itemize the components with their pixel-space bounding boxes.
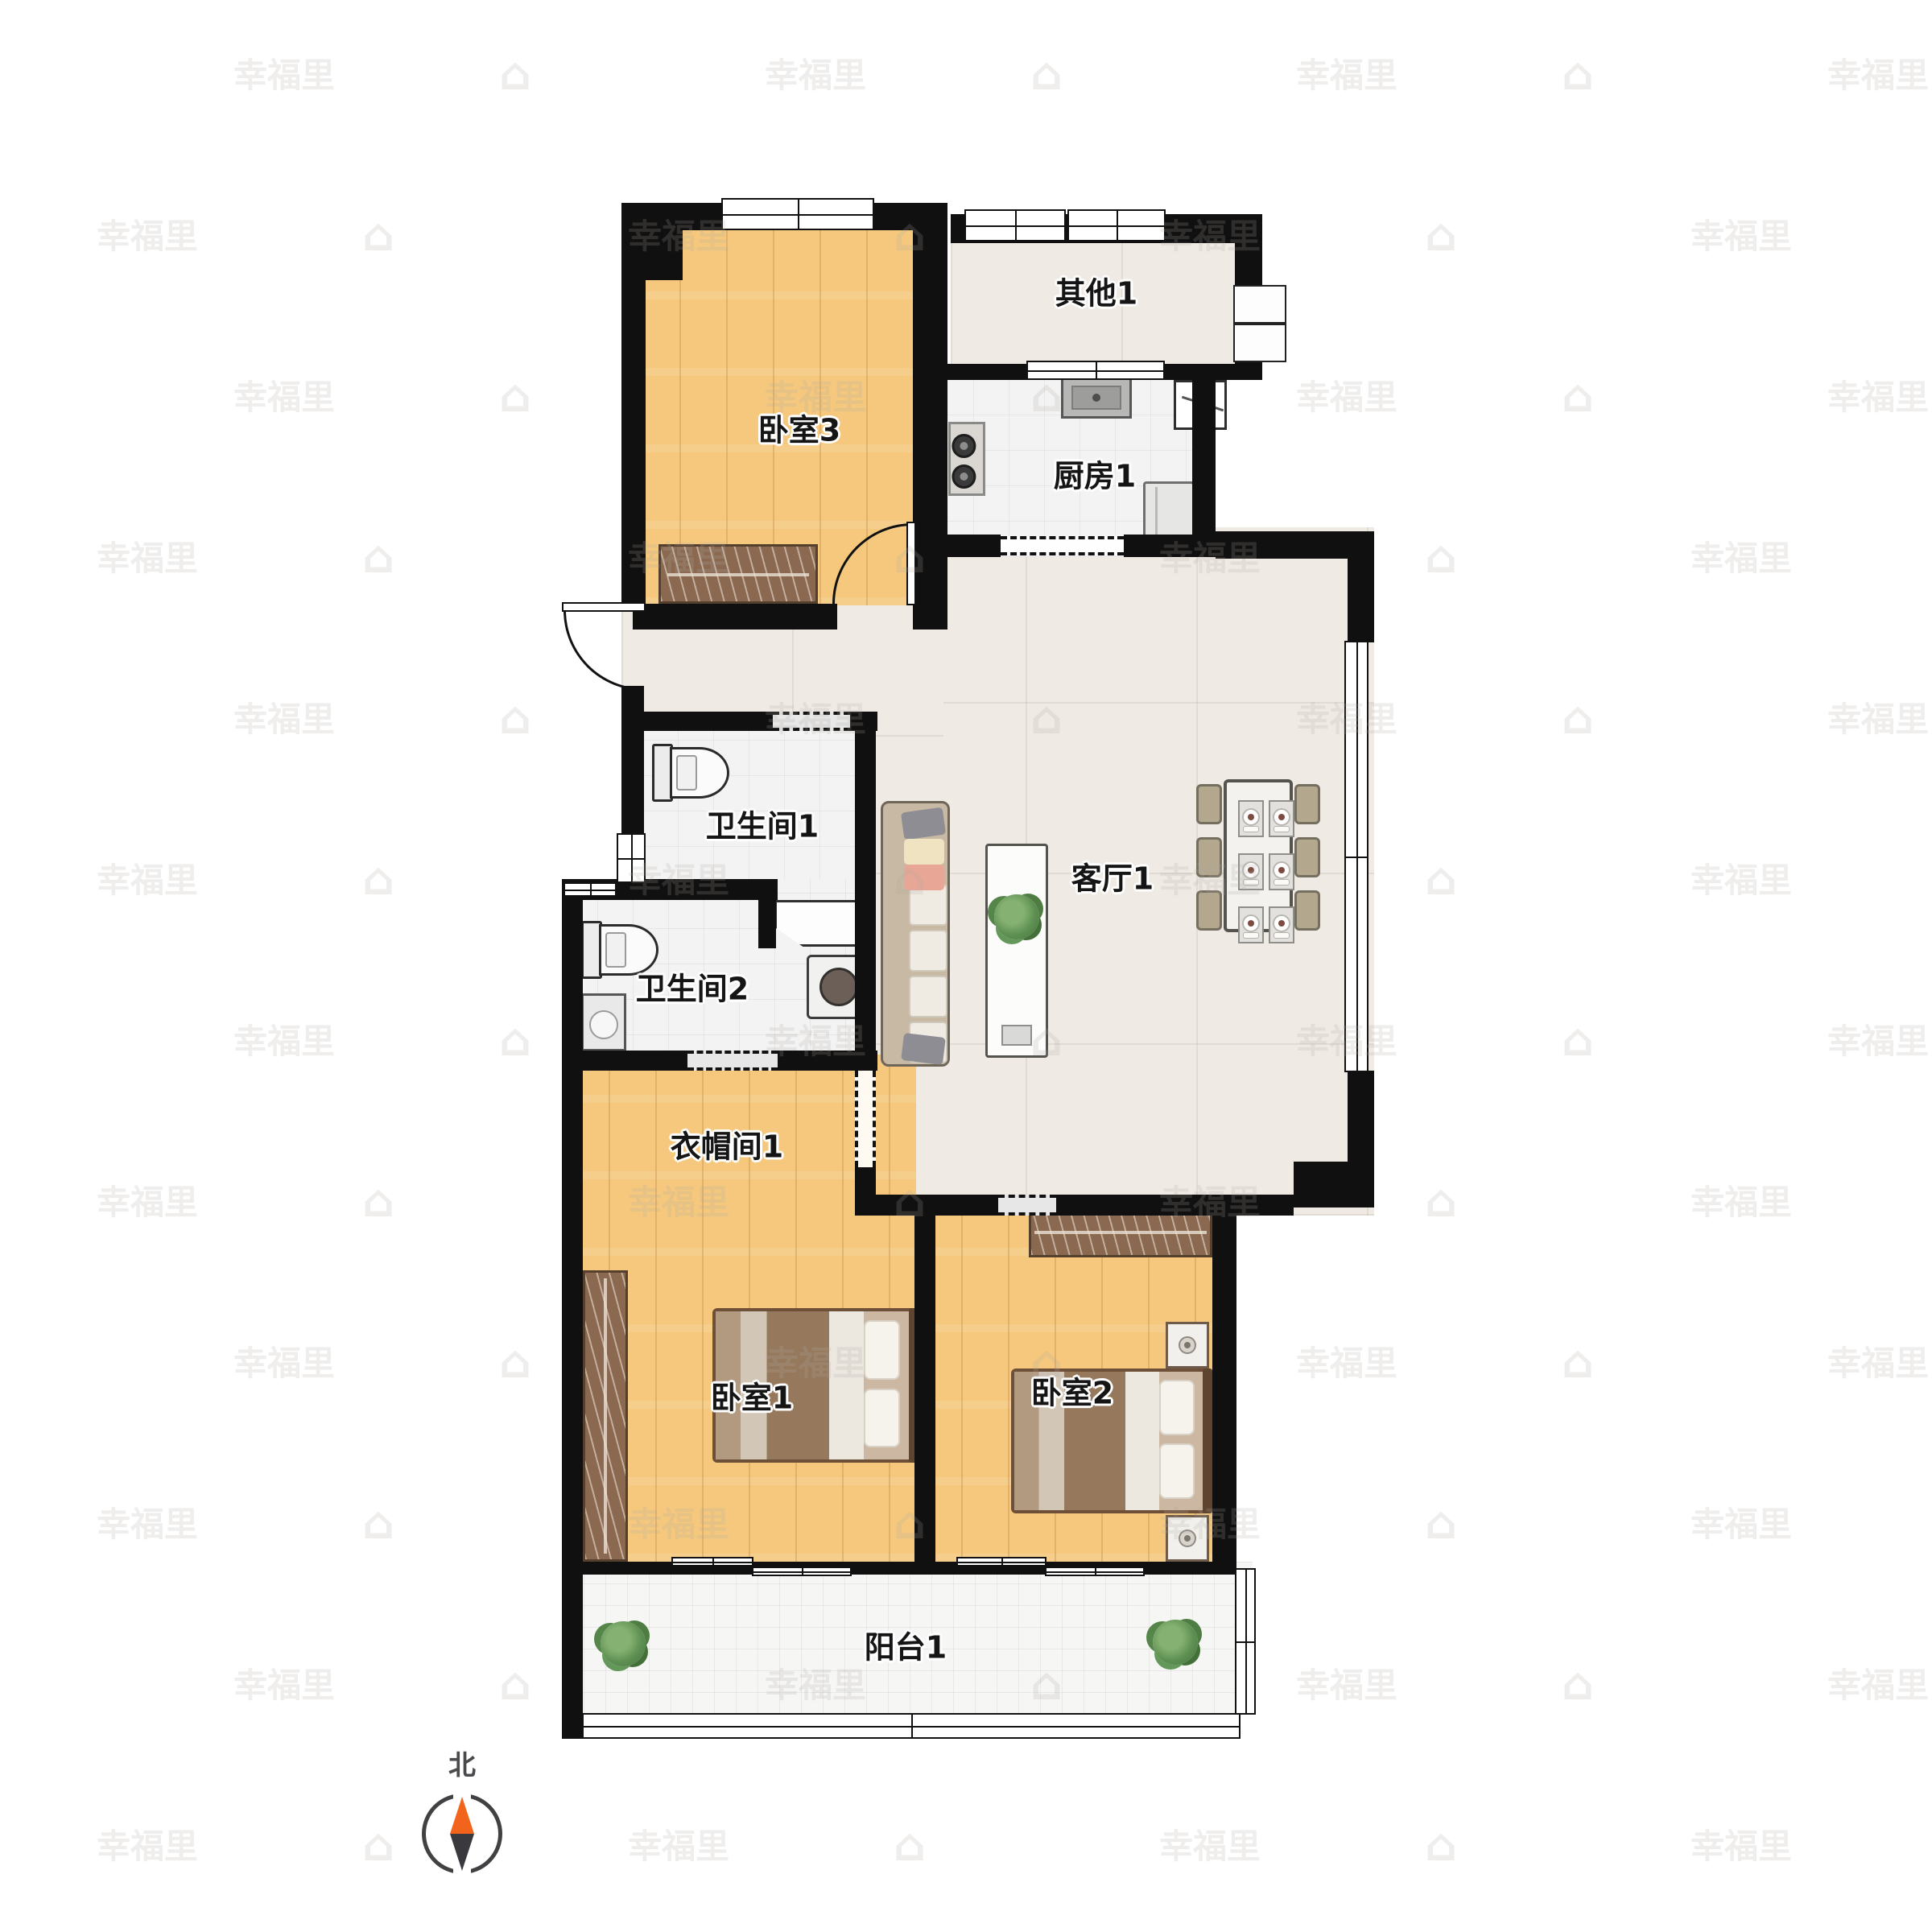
dining-table	[1224, 779, 1293, 932]
sofa-pillow-gray	[901, 1033, 946, 1065]
wall-22	[855, 712, 876, 1071]
bed-sheet	[1125, 1372, 1159, 1510]
wall-23	[855, 1167, 876, 1199]
bed-sheet	[829, 1311, 864, 1459]
wall-26	[914, 1216, 935, 1562]
watermark-text: 幸福里	[233, 1336, 335, 1385]
watermark-text: 幸福里	[233, 1014, 335, 1063]
watermark-text: 幸福里	[233, 48, 335, 97]
sofa-cushion	[909, 930, 947, 972]
watermark-house-icon: ⌂	[894, 1819, 926, 1872]
wardrobe-axis	[604, 1278, 607, 1554]
watermark-text: 幸福里	[1827, 370, 1929, 419]
coffee-table	[985, 844, 1048, 1058]
compass-north-needle	[450, 1797, 474, 1834]
room-label-balcony-1: 阳台1	[865, 1623, 947, 1667]
stove	[948, 422, 985, 496]
bed-headboard	[1203, 1368, 1212, 1513]
wall-27	[1212, 1216, 1236, 1562]
opening-0	[1001, 536, 1124, 555]
opening-1	[773, 712, 850, 731]
watermark-house-icon: ⌂	[499, 1336, 531, 1389]
wall-3	[913, 203, 947, 630]
sofa-cushion	[909, 976, 947, 1018]
wall-12	[1348, 559, 1374, 642]
window-11	[582, 1713, 1241, 1739]
watermark-text: 幸福里	[97, 1497, 198, 1546]
watermark-house-icon: ⌂	[499, 692, 531, 745]
watermark-text: 幸福里	[628, 1819, 729, 1868]
watermark-text: 幸福里	[1690, 853, 1792, 902]
nightstand-top	[1166, 1322, 1209, 1368]
watermark-house-icon: ⌂	[1562, 1658, 1594, 1711]
wall-niche-1	[1233, 324, 1286, 362]
window-10	[1045, 1567, 1145, 1576]
sofa-pillow-pink	[904, 865, 944, 890]
bed-pillow	[864, 1320, 900, 1380]
watermark-house-icon: ⌂	[1562, 1336, 1594, 1389]
place-setting	[1269, 853, 1294, 890]
watermark-text: 幸福里	[1296, 1658, 1397, 1707]
watermark-house-icon: ⌂	[362, 531, 394, 584]
watermark-text: 幸福里	[233, 1658, 335, 1707]
entry-door-leaf	[562, 602, 646, 612]
sofa-pillow-gray	[901, 807, 946, 840]
watermark-text: 幸福里	[97, 1175, 198, 1224]
watermark-text: 幸福里	[1296, 370, 1397, 419]
watermark-house-icon: ⌂	[499, 48, 531, 101]
window-0	[721, 198, 874, 230]
window-12	[1235, 1568, 1256, 1715]
wall-25	[562, 1071, 583, 1562]
dining-chair-right	[1294, 890, 1320, 931]
watermark-text: 幸福里	[1690, 1497, 1792, 1546]
opening-4	[855, 1071, 876, 1167]
wall-8	[1192, 380, 1216, 557]
watermark-text: 幸福里	[97, 1819, 198, 1868]
room-label-bathroom-2: 卫生间2	[636, 964, 749, 1009]
window-3	[1026, 361, 1165, 380]
place-setting	[1238, 853, 1264, 890]
watermark-text: 幸福里	[1690, 1175, 1792, 1224]
watermark-house-icon: ⌂	[1425, 853, 1457, 906]
wall-10	[1124, 535, 1216, 557]
sofa-pillow-cream	[904, 839, 944, 865]
watermark-house-icon: ⌂	[362, 1497, 394, 1550]
watermark-house-icon: ⌂	[362, 209, 394, 262]
wall-14	[1294, 1162, 1374, 1207]
bed-pillow	[864, 1389, 900, 1448]
wall-21	[758, 879, 776, 948]
watermark-house-icon: ⌂	[1425, 1819, 1457, 1872]
watermark-text: 幸福里	[1827, 692, 1929, 741]
wall-2	[621, 203, 646, 610]
room-label-bedroom-2: 卧室2	[1031, 1368, 1113, 1413]
wall-4	[633, 604, 837, 630]
room-label-bathroom-1: 卫生间1	[706, 802, 819, 846]
dining-chair-left	[1196, 784, 1222, 824]
watermark-house-icon: ⌂	[1562, 692, 1594, 745]
wall-18	[562, 879, 583, 1071]
watermark-text: 幸福里	[1690, 209, 1792, 258]
bed-axis	[667, 573, 810, 576]
nightstand-bottom	[1166, 1515, 1209, 1562]
watermark-text: 幸福里	[1827, 1014, 1929, 1063]
bed-pillow	[1159, 1443, 1195, 1499]
watermark-house-icon: ⌂	[1425, 531, 1457, 584]
watermark-house-icon: ⌂	[499, 370, 531, 423]
room-label-kitchen-1: 厨房1	[1054, 452, 1136, 496]
watermark-text: 幸福里	[233, 370, 335, 419]
table-remote	[1001, 1025, 1032, 1046]
bedroom3-door-leaf	[906, 522, 916, 605]
bed-bedroom3	[658, 544, 818, 604]
watermark-text: 幸福里	[1690, 1819, 1792, 1868]
watermark-house-icon: ⌂	[1030, 48, 1063, 101]
watermark-text: 幸福里	[1296, 1336, 1397, 1385]
north-label: 北	[448, 1744, 476, 1783]
wardrobe-axis	[1034, 1231, 1206, 1234]
opening-3	[998, 1195, 1056, 1216]
kitchen-sink	[1061, 377, 1132, 419]
compass-south-needle	[450, 1834, 474, 1871]
watermark-house-icon: ⌂	[1562, 1014, 1594, 1067]
entry-door-arc	[563, 610, 644, 691]
wall-niche-0	[1233, 285, 1286, 324]
window-5	[563, 882, 617, 897]
watermark-text: 幸福里	[97, 853, 198, 902]
watermark-text: 幸福里	[1827, 48, 1929, 97]
floorplan-canvas: 客厅1卧室3其他1厨房1卫生间1卫生间2衣帽间1卧室1卧室2阳台1 北 ⌂幸福里…	[0, 0, 1932, 1932]
room-label-other-1: 其他1	[1055, 269, 1137, 313]
room-label-cloakroom-1: 衣帽间1	[671, 1122, 783, 1166]
watermark-house-icon: ⌂	[362, 1175, 394, 1228]
watermark-text: 幸福里	[233, 692, 335, 741]
toilet-bath1	[652, 744, 729, 802]
watermark-text: 幸福里	[1827, 1658, 1929, 1707]
place-setting	[1238, 800, 1264, 837]
table-plant	[994, 894, 1039, 939]
place-setting	[1269, 800, 1294, 837]
window-4	[617, 833, 646, 883]
room-label-living-room-1: 客厅1	[1071, 854, 1154, 898]
watermark-house-icon: ⌂	[499, 1658, 531, 1711]
watermark-text: 幸福里	[1296, 48, 1397, 97]
bed-pillow	[1159, 1380, 1195, 1435]
wall-16	[621, 686, 644, 835]
window-1	[964, 209, 1066, 242]
room-label-bedroom-1: 卧室1	[711, 1373, 793, 1418]
place-setting	[1238, 906, 1264, 943]
watermark-house-icon: ⌂	[1425, 209, 1457, 262]
watermark-house-icon: ⌂	[1425, 1497, 1457, 1550]
bath2-sink	[581, 993, 626, 1051]
wall-11	[1216, 531, 1374, 559]
place-setting	[1269, 906, 1294, 943]
sofa	[881, 801, 950, 1067]
window-7	[671, 1557, 753, 1567]
watermark-text: 幸福里	[97, 209, 198, 258]
watermark-text: 幸福里	[1690, 531, 1792, 580]
watermark-text: 幸福里	[97, 531, 198, 580]
room-label-bedroom-3: 卧室3	[758, 406, 840, 450]
watermark-house-icon: ⌂	[362, 1819, 394, 1872]
watermark-text: 幸福里	[765, 48, 866, 97]
window-9	[956, 1557, 1046, 1567]
watermark-text: 幸福里	[1827, 1336, 1929, 1385]
wall-9	[938, 535, 1001, 557]
wardrobe-bedroom1	[583, 1270, 628, 1562]
watermark-house-icon: ⌂	[1562, 370, 1594, 423]
watermark-house-icon: ⌂	[1562, 48, 1594, 101]
opening-2	[687, 1051, 778, 1071]
dining-chair-left	[1196, 890, 1222, 931]
wall-15	[855, 1195, 1294, 1216]
watermark-house-icon: ⌂	[362, 853, 394, 906]
wall-30	[562, 1562, 583, 1723]
watermark-house-icon: ⌂	[499, 1014, 531, 1067]
dining-chair-right	[1294, 784, 1320, 824]
balcony-plant-left	[601, 1621, 646, 1666]
window-2	[1067, 209, 1166, 242]
balcony-plant-right	[1153, 1620, 1198, 1665]
window-6	[1344, 641, 1368, 1072]
dining-chair-right	[1294, 837, 1320, 877]
window-8	[752, 1567, 852, 1576]
watermark-house-icon: ⌂	[1425, 1175, 1457, 1228]
dining-chair-left	[1196, 837, 1222, 877]
watermark-text: 幸福里	[1159, 1819, 1261, 1868]
